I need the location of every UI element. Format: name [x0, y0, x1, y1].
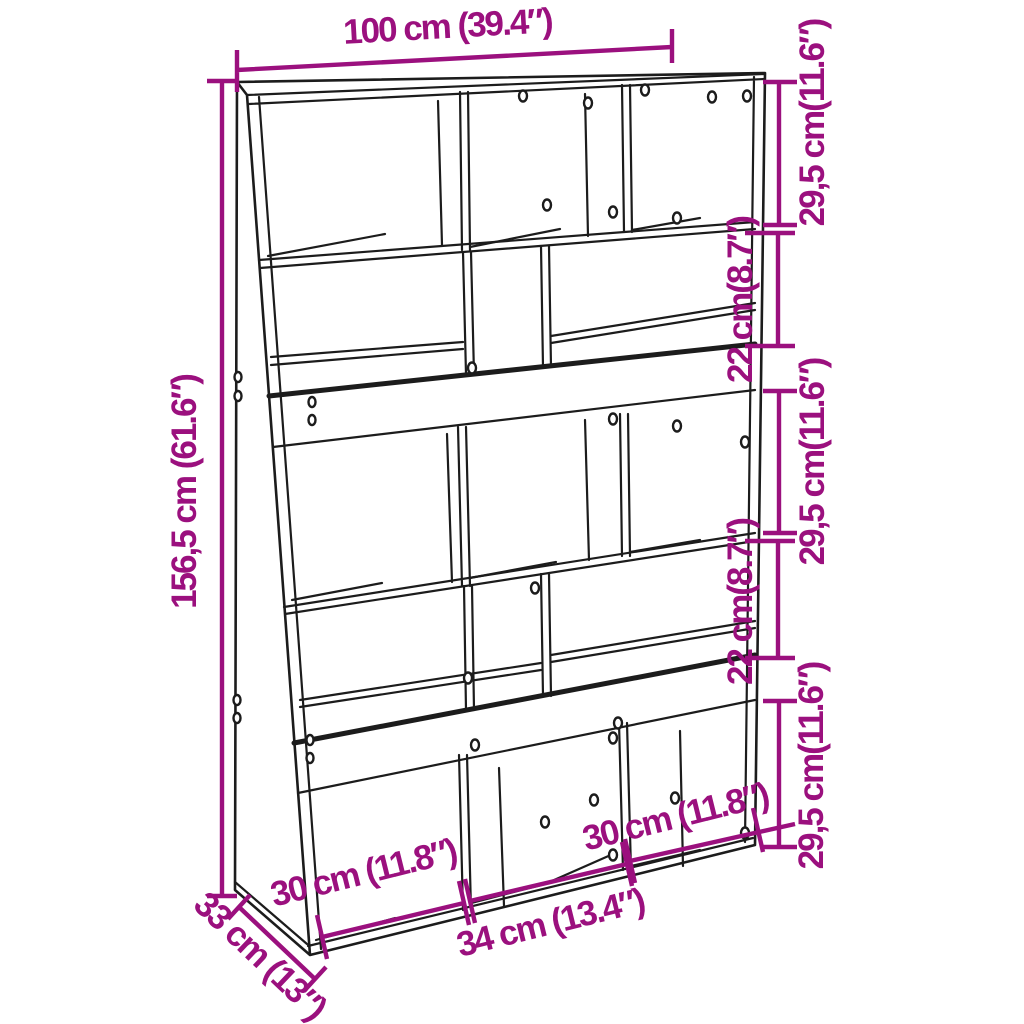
screw-hole [743, 91, 751, 102]
screw-hole [609, 733, 617, 744]
screw-hole [468, 363, 476, 374]
right-dimension-1: 29,5 cm(11.6″) [763, 19, 832, 226]
screw-hole [708, 92, 716, 103]
screw-holes [234, 85, 752, 861]
right-dimension-4-label: 22 cm(8.7″) [721, 519, 760, 685]
right-dimension-1-line [763, 82, 797, 225]
right-dimension-4: 22 cm(8.7″) [721, 519, 795, 685]
screw-hole [235, 372, 242, 382]
screw-hole [234, 713, 241, 723]
screw-hole [234, 695, 241, 705]
screw-hole [543, 200, 551, 211]
screw-hole [309, 397, 316, 407]
bottom-dimension-1-label: 30 cm (11.8″) [267, 831, 460, 914]
screw-hole [641, 85, 649, 96]
screw-hole [471, 740, 479, 751]
screw-hole [464, 673, 472, 684]
bookcase-back-panels [271, 303, 755, 707]
screw-hole [609, 207, 617, 218]
screw-hole [673, 421, 681, 432]
screw-hole [519, 91, 527, 102]
bookcase-shelves [259, 222, 755, 793]
screw-hole [673, 213, 681, 224]
right-dimension-5-label: 29,5 cm(11.6″) [792, 662, 831, 869]
screw-hole [590, 795, 598, 806]
bottom-dimension-2-label: 34 cm (13.4″) [453, 881, 648, 965]
right-dimension-5: 29,5 cm(11.6″) [763, 662, 831, 869]
diagram-stage: 100 cm (39.4″) 156,5 cm (61.6″) 29,5 cm(… [0, 0, 1024, 1024]
right-dimension-3: 29,5 cm(11.6″) [763, 358, 832, 565]
screw-hole [235, 391, 242, 401]
bookcase-dimension-diagram: 100 cm (39.4″) 156,5 cm (61.6″) 29,5 cm(… [0, 0, 1024, 1024]
height-dimension-line [207, 81, 237, 896]
right-dimension-1-label: 29,5 cm(11.6″) [793, 19, 832, 226]
right-dimension-2-label: 22 cm(8.7″) [721, 217, 760, 383]
screw-hole [609, 414, 617, 425]
screw-hole [307, 753, 314, 763]
right-dimension-3-line [763, 391, 797, 533]
screw-hole [531, 583, 539, 594]
height-dimension-label: 156,5 cm (61.6″) [165, 375, 204, 609]
bottom-dimension-3-label: 30 cm (11.8″) [579, 775, 772, 858]
screw-hole [741, 437, 749, 448]
right-dimension-2: 22 cm(8.7″) [721, 217, 795, 383]
width-dimension-label: 100 cm (39.4″) [342, 1, 553, 52]
screw-hole [614, 718, 622, 729]
screw-hole [309, 415, 316, 425]
right-dimension-3-label: 29,5 cm(11.6″) [793, 358, 832, 565]
screw-hole [541, 817, 549, 828]
height-dimension: 156,5 cm (61.6″) [165, 81, 237, 896]
screw-hole [584, 98, 592, 109]
screw-hole [307, 735, 314, 745]
